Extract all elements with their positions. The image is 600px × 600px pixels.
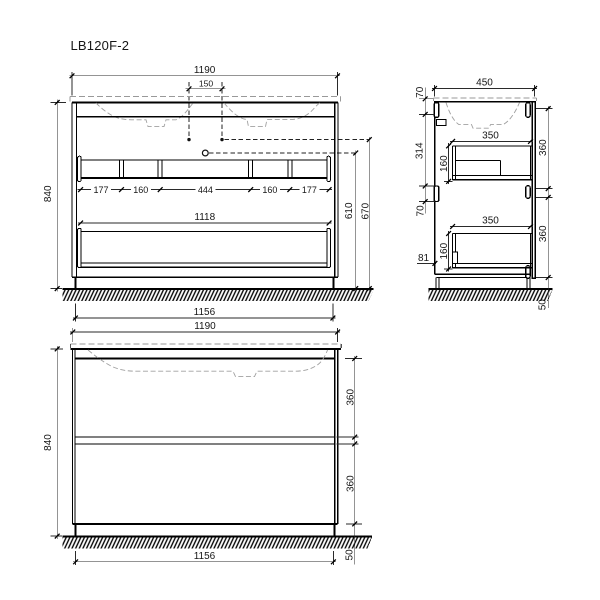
svg-text:160: 160: [439, 155, 450, 172]
svg-text:360: 360: [538, 139, 549, 156]
svg-text:360: 360: [346, 389, 357, 406]
svg-text:314: 314: [414, 142, 425, 159]
svg-text:610: 610: [344, 202, 355, 219]
svg-text:160: 160: [262, 185, 277, 195]
svg-text:50: 50: [345, 549, 356, 561]
svg-text:160: 160: [133, 185, 148, 195]
svg-text:350: 350: [482, 216, 499, 227]
svg-text:160: 160: [439, 242, 450, 259]
svg-text:81: 81: [418, 253, 430, 264]
svg-text:444: 444: [198, 185, 213, 195]
svg-text:LB120F-2: LB120F-2: [71, 38, 130, 53]
svg-text:150: 150: [199, 78, 214, 88]
svg-text:840: 840: [43, 434, 54, 451]
svg-text:350: 350: [482, 130, 499, 141]
svg-text:1156: 1156: [194, 307, 216, 318]
svg-text:70: 70: [416, 205, 427, 217]
svg-text:177: 177: [93, 185, 108, 195]
svg-text:1156: 1156: [194, 551, 216, 562]
svg-text:1118: 1118: [194, 212, 215, 223]
svg-text:1190: 1190: [194, 65, 216, 76]
svg-text:840: 840: [43, 185, 54, 202]
svg-text:177: 177: [302, 185, 317, 195]
svg-text:50: 50: [538, 299, 549, 311]
svg-text:360: 360: [346, 475, 357, 492]
svg-text:670: 670: [361, 202, 372, 219]
svg-text:360: 360: [538, 225, 549, 242]
svg-text:70: 70: [415, 86, 426, 98]
svg-text:1190: 1190: [194, 321, 216, 332]
svg-text:450: 450: [476, 77, 493, 88]
